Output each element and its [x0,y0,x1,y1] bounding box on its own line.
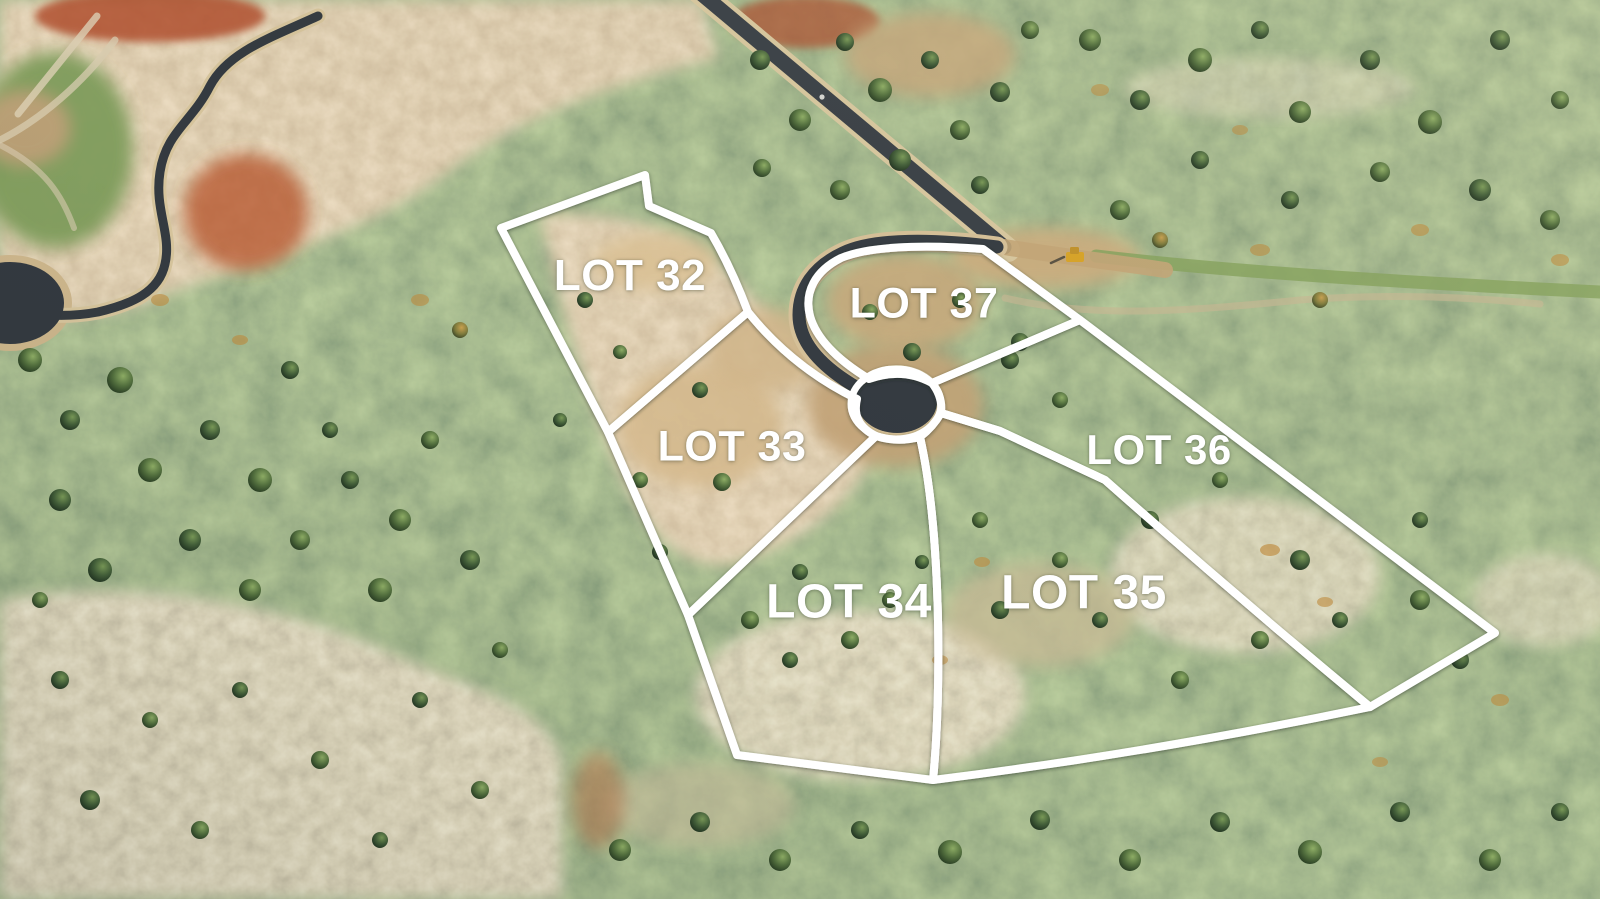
lot-36-label: LOT 36 [1086,426,1231,474]
lot-32-label: LOT 32 [554,251,706,301]
lot-37-label: LOT 37 [850,280,999,329]
lot-33-label: LOT 33 [658,423,807,472]
aerial-lot-map: LOT 32 LOT 33 LOT 34 LOT 35 LOT 36 LOT 3… [0,0,1600,899]
lot-35-label: LOT 35 [1001,566,1167,621]
lot-34-label: LOT 34 [766,575,932,630]
